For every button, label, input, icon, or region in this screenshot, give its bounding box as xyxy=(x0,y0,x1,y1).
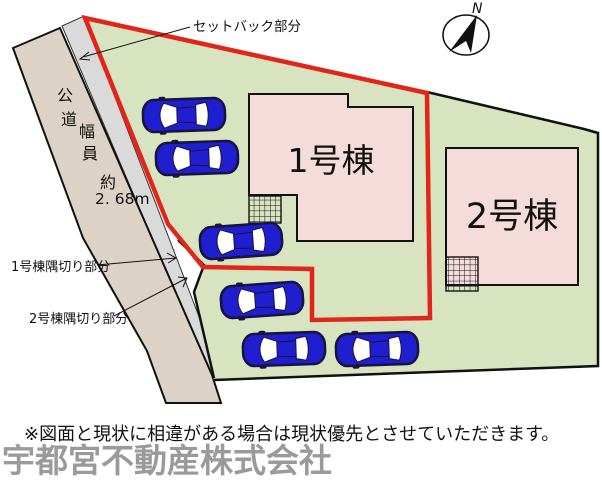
setback-label: セットバック部分 xyxy=(193,19,301,35)
road-label-char: 公 xyxy=(57,86,73,105)
car-icon xyxy=(142,95,225,136)
road-width-value: 2. 68m xyxy=(95,190,150,208)
building-1-label: 1号棟 xyxy=(288,141,375,180)
company-watermark: 宇都宮不動産株式会社 xyxy=(2,441,332,480)
disclaimer-text: ※図面と現状に相違がある場合は現状優先とさせていただきます。 xyxy=(24,424,559,445)
car-icon xyxy=(155,138,238,179)
road-label-char: 道 xyxy=(61,110,77,129)
corner-cut-1-label: 1号棟隅切り部分 xyxy=(11,260,110,275)
entrance-grid-1 xyxy=(249,196,281,223)
car-icon xyxy=(335,329,418,370)
corner-cut-2-label: 2号棟隅切り部分 xyxy=(29,312,128,327)
road-label-char: 員 xyxy=(82,144,98,163)
building-2-label: 2号棟 xyxy=(466,197,558,237)
north-compass-icon: N xyxy=(443,1,489,55)
site-plan-canvas: 1号棟 2号棟 セットバック部分 公 道 幅 員 約 2. 68m 1号棟隅切り… xyxy=(0,0,602,480)
north-label: N xyxy=(472,1,483,17)
car-icon xyxy=(242,329,325,370)
entrance-grid-2 xyxy=(446,257,478,291)
road-label-char: 幅 xyxy=(79,122,95,141)
site-plan-drawing: 1号棟 2号棟 セットバック部分 公 道 幅 員 約 2. 68m 1号棟隅切り… xyxy=(0,0,602,480)
